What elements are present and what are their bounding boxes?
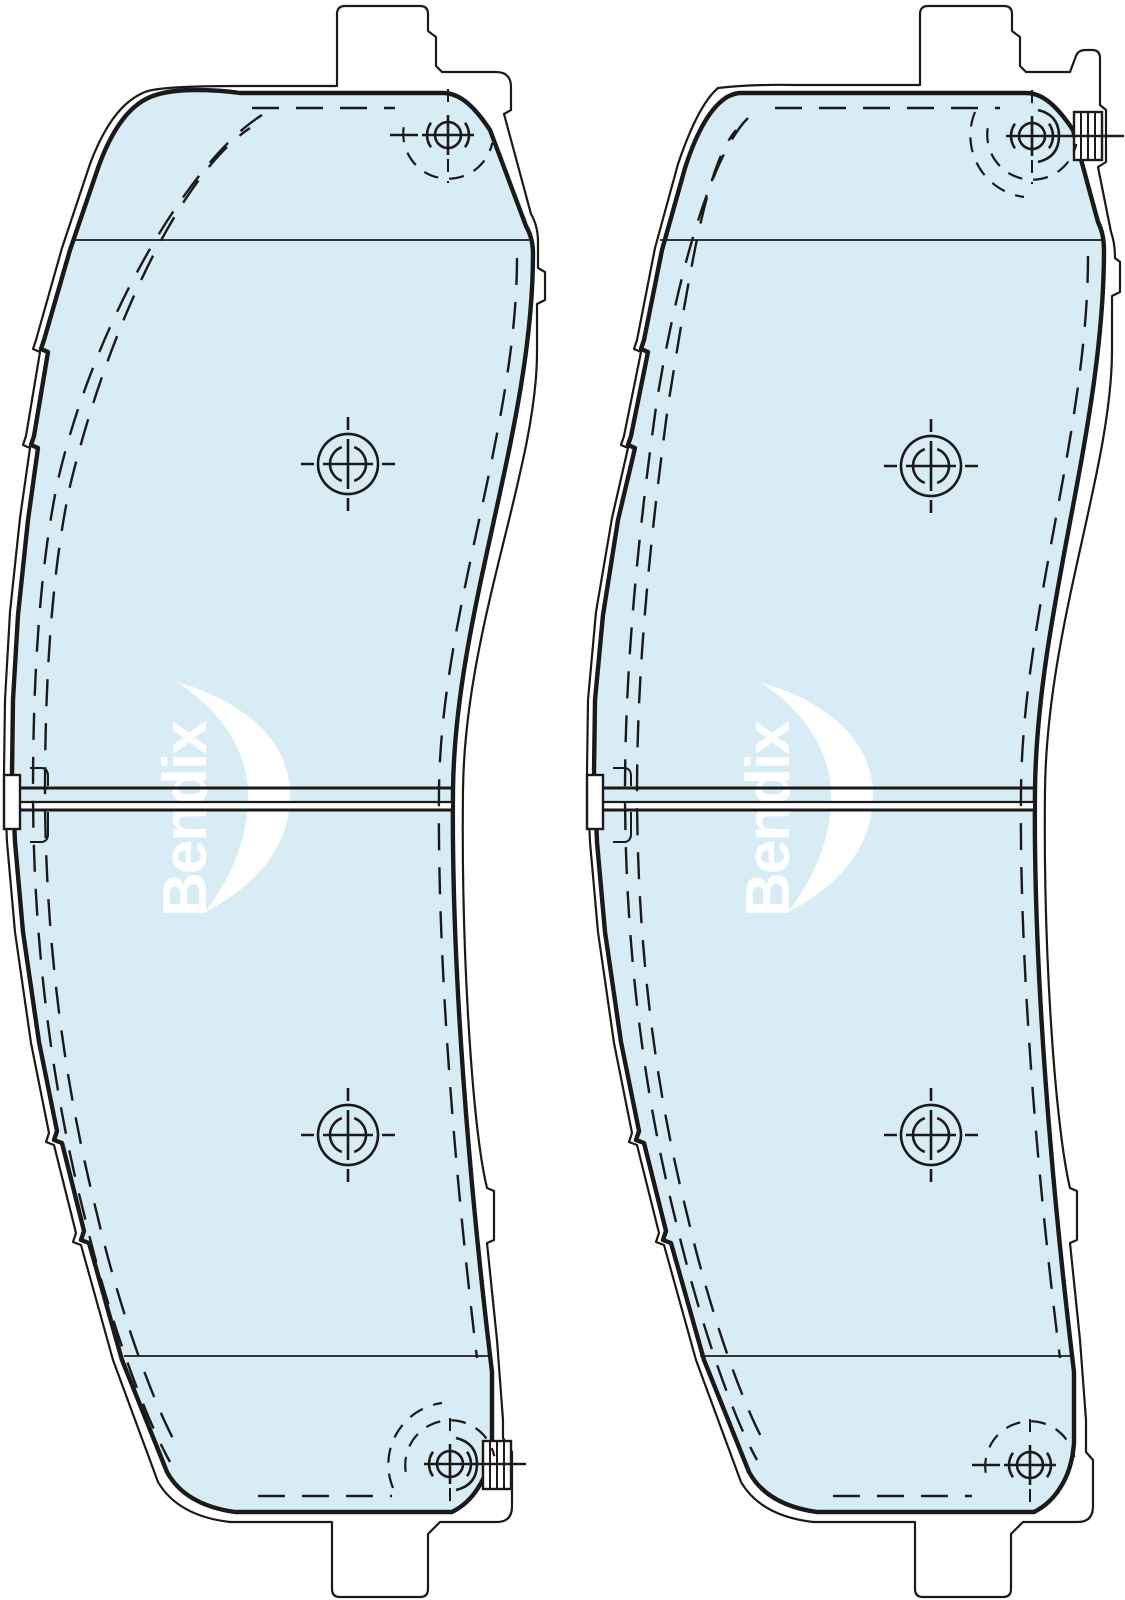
slot-ear [4, 775, 20, 829]
bendix-wordmark: Bendix [151, 720, 220, 917]
bendix-wordmark: Bendix [734, 720, 803, 917]
slot-ear [587, 775, 603, 829]
pad-right: Bendix [587, 6, 1124, 1597]
pad-left: Bendix [4, 6, 545, 1597]
brake-pad-set-drawing: Bendix [0, 0, 1125, 1600]
